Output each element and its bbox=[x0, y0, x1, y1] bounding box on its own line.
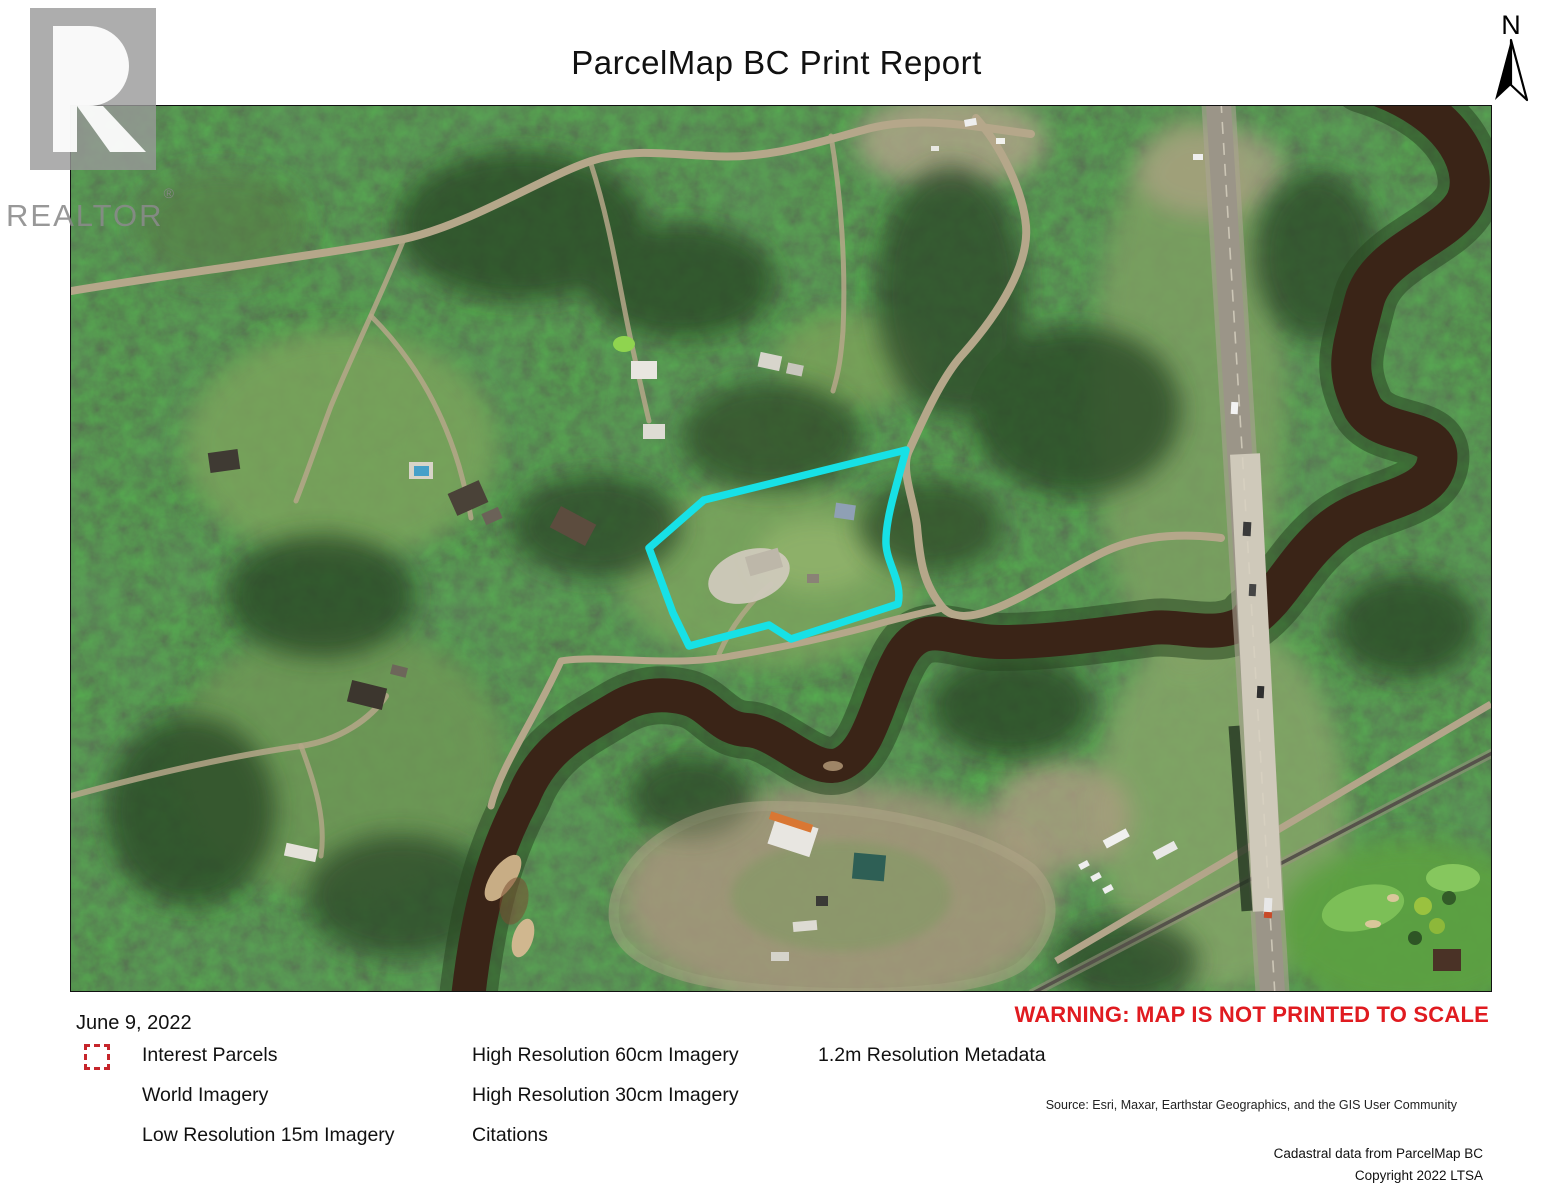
legend-world-imagery: World Imagery bbox=[142, 1082, 268, 1108]
north-arrow-icon bbox=[1485, 38, 1531, 104]
legend-low-res-imagery: Low Resolution 15m Imagery bbox=[142, 1122, 395, 1148]
satellite-map bbox=[70, 105, 1492, 992]
legend-metadata: 1.2m Resolution Metadata bbox=[818, 1042, 1046, 1068]
satellite-map-image bbox=[71, 106, 1491, 991]
print-report-page: ParcelMap BC Print Report REALTOR® N bbox=[0, 0, 1553, 1200]
legend-citations: Citations bbox=[472, 1122, 548, 1148]
cadastral-credit: Cadastral data from ParcelMap BC bbox=[1274, 1146, 1483, 1161]
interest-parcel-legend-icon bbox=[84, 1044, 110, 1070]
north-arrow: N bbox=[1485, 12, 1531, 109]
legend-high-res-60: High Resolution 60cm Imagery bbox=[472, 1042, 739, 1068]
scale-warning: WARNING: MAP IS NOT PRINTED TO SCALE bbox=[1014, 1002, 1489, 1028]
north-label: N bbox=[1491, 12, 1531, 38]
map-date: June 9, 2022 bbox=[76, 1012, 192, 1035]
page-title: ParcelMap BC Print Report bbox=[0, 44, 1553, 82]
copyright: Copyright 2022 LTSA bbox=[1355, 1168, 1483, 1183]
legend-high-res-30: High Resolution 30cm Imagery bbox=[472, 1082, 739, 1108]
legend-interest-parcels: Interest Parcels bbox=[142, 1042, 277, 1068]
imagery-source: Source: Esri, Maxar, Earthstar Geographi… bbox=[1046, 1098, 1457, 1112]
